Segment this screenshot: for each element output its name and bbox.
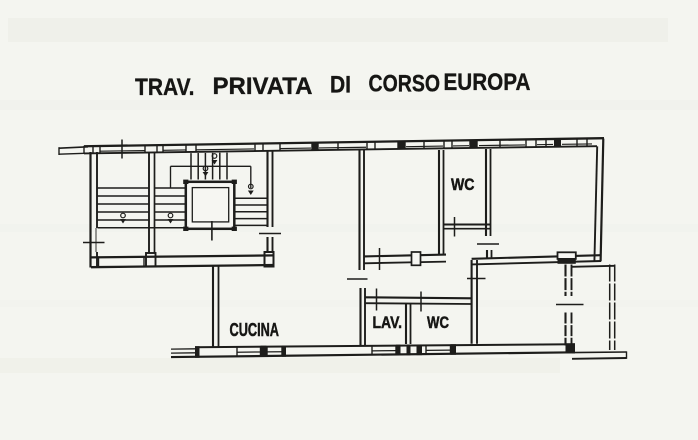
svg-text:WC: WC <box>451 175 475 194</box>
svg-text:CORSO: CORSO <box>369 71 441 97</box>
svg-text:PRIVATA: PRIVATA <box>213 74 313 100</box>
svg-text:EUROPA: EUROPA <box>444 70 531 96</box>
svg-text:CUCINA: CUCINA <box>230 319 280 340</box>
svg-text:WC: WC <box>427 313 449 332</box>
svg-text:DI: DI <box>330 72 351 98</box>
svg-text:TRAV.: TRAV. <box>135 75 195 101</box>
svg-text:LAV.: LAV. <box>373 313 403 332</box>
